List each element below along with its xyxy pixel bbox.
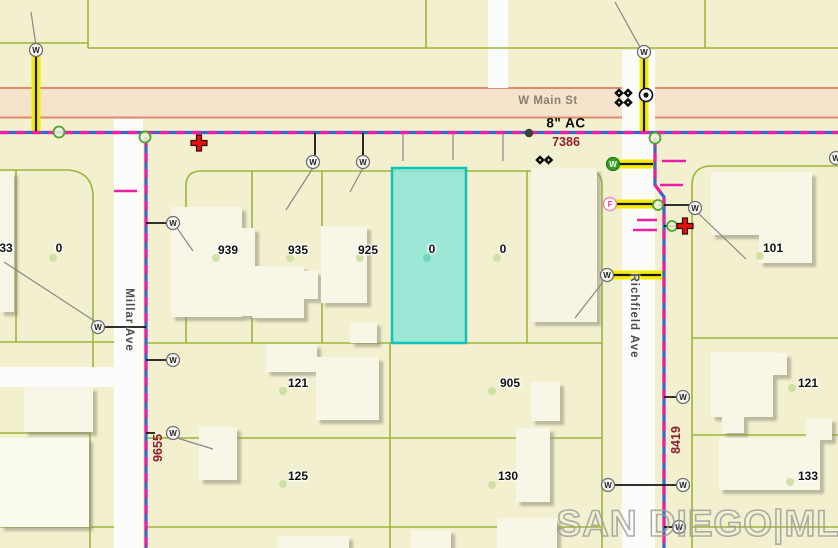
main-street-label: W Main St — [518, 95, 577, 107]
svg-text:F: F — [608, 200, 613, 209]
mls-watermark: SAN DIEGO|MLS — [556, 503, 838, 545]
richfield-node-id-label: 8419 — [669, 426, 683, 454]
water-meter-icon: W — [677, 391, 690, 404]
millar-ave-label: Millar Ave — [123, 288, 135, 351]
water-meter-icon: W — [167, 354, 180, 367]
water-main-size-label: 8" AC — [546, 116, 585, 131]
west-side-road — [0, 367, 114, 387]
svg-text:W: W — [609, 160, 617, 169]
parcel-label: 0 — [500, 242, 507, 256]
parcel-label: 0 — [56, 241, 63, 255]
main-street-band — [0, 88, 838, 118]
water-meter-icon: W — [638, 46, 651, 59]
svg-text:W: W — [640, 48, 648, 57]
svg-text:W: W — [604, 481, 612, 490]
water-meter-icon: W — [602, 479, 615, 492]
water-meter-icon: W — [357, 156, 370, 169]
selected-parcel-label: 0 — [429, 242, 436, 256]
millar-node-id-label: 9655 — [151, 434, 165, 462]
north-side-road — [488, 0, 508, 88]
svg-text:W: W — [359, 158, 367, 167]
water-meter-icon: W — [307, 156, 320, 169]
svg-text:W: W — [169, 219, 177, 228]
parcel-label: 935 — [288, 243, 308, 257]
water-node-dot — [525, 129, 534, 138]
svg-text:W: W — [309, 158, 317, 167]
svg-text:W: W — [832, 154, 838, 163]
svg-text:W: W — [169, 429, 177, 438]
parcel-label: 121 — [798, 376, 818, 390]
parcel-label: 125 — [288, 469, 308, 483]
manhole-target-icon — [640, 89, 653, 102]
water-meter-icon: W — [30, 44, 43, 57]
parcel-label: 33 — [0, 241, 13, 255]
svg-text:W: W — [603, 271, 611, 280]
svg-text:W: W — [169, 356, 177, 365]
gis-parcel-map[interactable]: W W W W W W W W W W W W W W W W F W Main… — [0, 0, 838, 548]
water-meter-icon: W — [689, 202, 702, 215]
parcel-label: 101 — [763, 241, 783, 255]
main-node-id-label: 7386 — [552, 135, 580, 149]
svg-text:W: W — [32, 46, 40, 55]
water-meter-icon: W — [167, 217, 180, 230]
water-meter-icon: W — [167, 427, 180, 440]
fire-service-icon: F — [604, 198, 617, 211]
parcel-label: 133 — [798, 469, 818, 483]
parcel-label: 130 — [498, 469, 518, 483]
svg-text:W: W — [691, 204, 699, 213]
water-meter-icon: W — [92, 321, 105, 334]
svg-text:W: W — [679, 393, 687, 402]
water-meter-icon: W — [830, 152, 838, 165]
parcel-label: 121 — [288, 376, 308, 390]
parcel-label: 905 — [500, 376, 520, 390]
svg-text:W: W — [94, 323, 102, 332]
parcel-label: 925 — [358, 243, 378, 257]
svg-text:W: W — [679, 481, 687, 490]
water-meter-icon: W — [677, 479, 690, 492]
map-canvas: W W W W W W W W W W W W W W W W F — [0, 0, 838, 548]
water-valve-green-icon: W — [607, 158, 620, 171]
parcel-label: 939 — [218, 243, 238, 257]
water-meter-icon: W — [601, 269, 614, 282]
richfield-ave-label: Richfield Ave — [628, 274, 640, 359]
